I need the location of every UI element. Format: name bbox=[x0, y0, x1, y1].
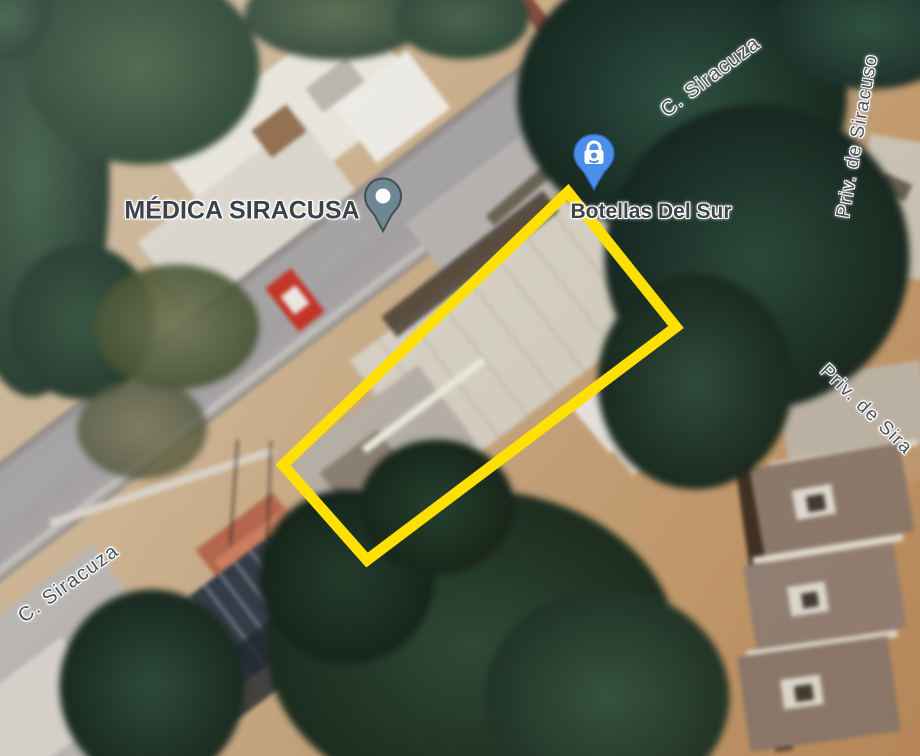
place-pin-body bbox=[365, 179, 401, 232]
shopping-pin[interactable] bbox=[571, 133, 617, 191]
poi-label-botellas[interactable]: Botellas Del Sur bbox=[570, 200, 731, 224]
place-pin-dot bbox=[376, 189, 391, 204]
map-canvas[interactable]: MÉDICA SIRACUSA Botellas Del Sur C. Sira… bbox=[0, 0, 920, 756]
poi-label-medica[interactable]: MÉDICA SIRACUSA bbox=[124, 197, 359, 226]
parcel-overlay-svg bbox=[0, 0, 920, 756]
place-pin[interactable] bbox=[363, 177, 403, 233]
parcel-outline bbox=[283, 192, 676, 560]
